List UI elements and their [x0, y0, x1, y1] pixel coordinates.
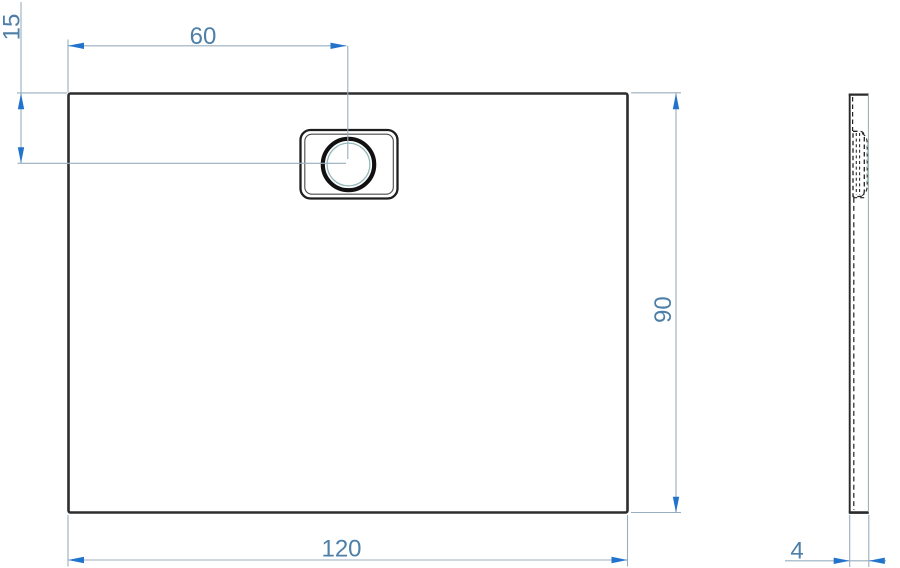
svg-text:120: 120: [321, 536, 361, 563]
svg-text:90: 90: [650, 296, 677, 323]
svg-text:60: 60: [190, 23, 217, 50]
svg-text:4: 4: [790, 538, 803, 565]
svg-text:15: 15: [0, 14, 26, 41]
